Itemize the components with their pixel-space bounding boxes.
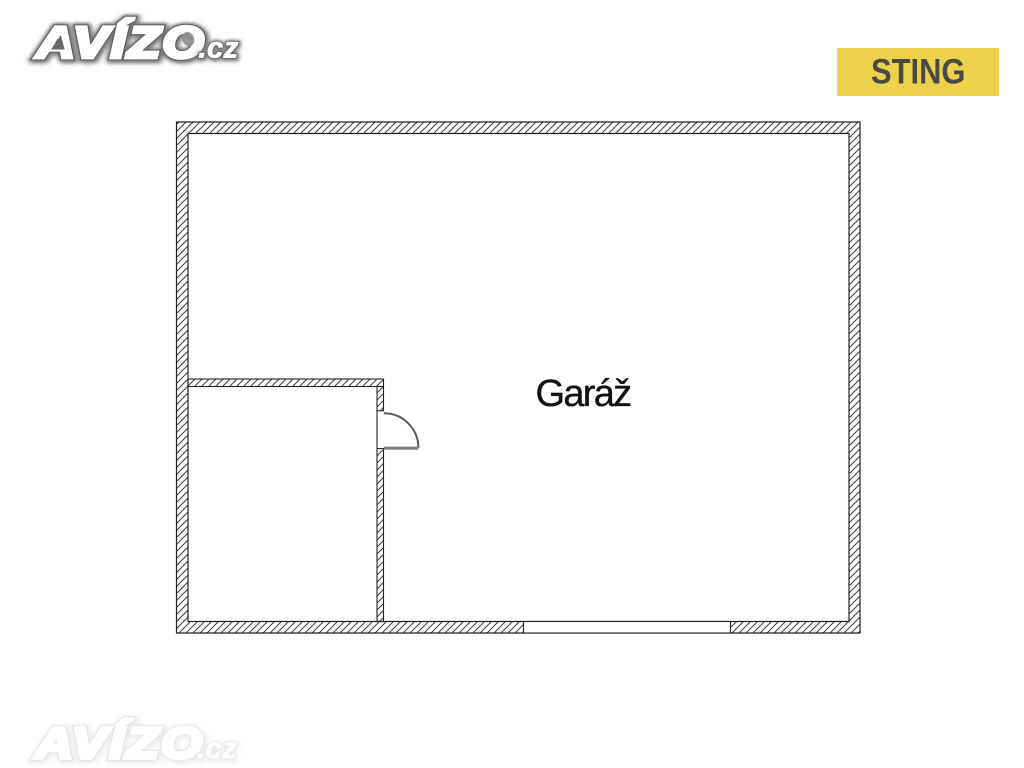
svg-text:Garáž: Garáž <box>536 373 632 415</box>
svg-text:.cz: .cz <box>197 733 237 765</box>
svg-text:AVÍZO: AVÍZO <box>34 719 205 768</box>
